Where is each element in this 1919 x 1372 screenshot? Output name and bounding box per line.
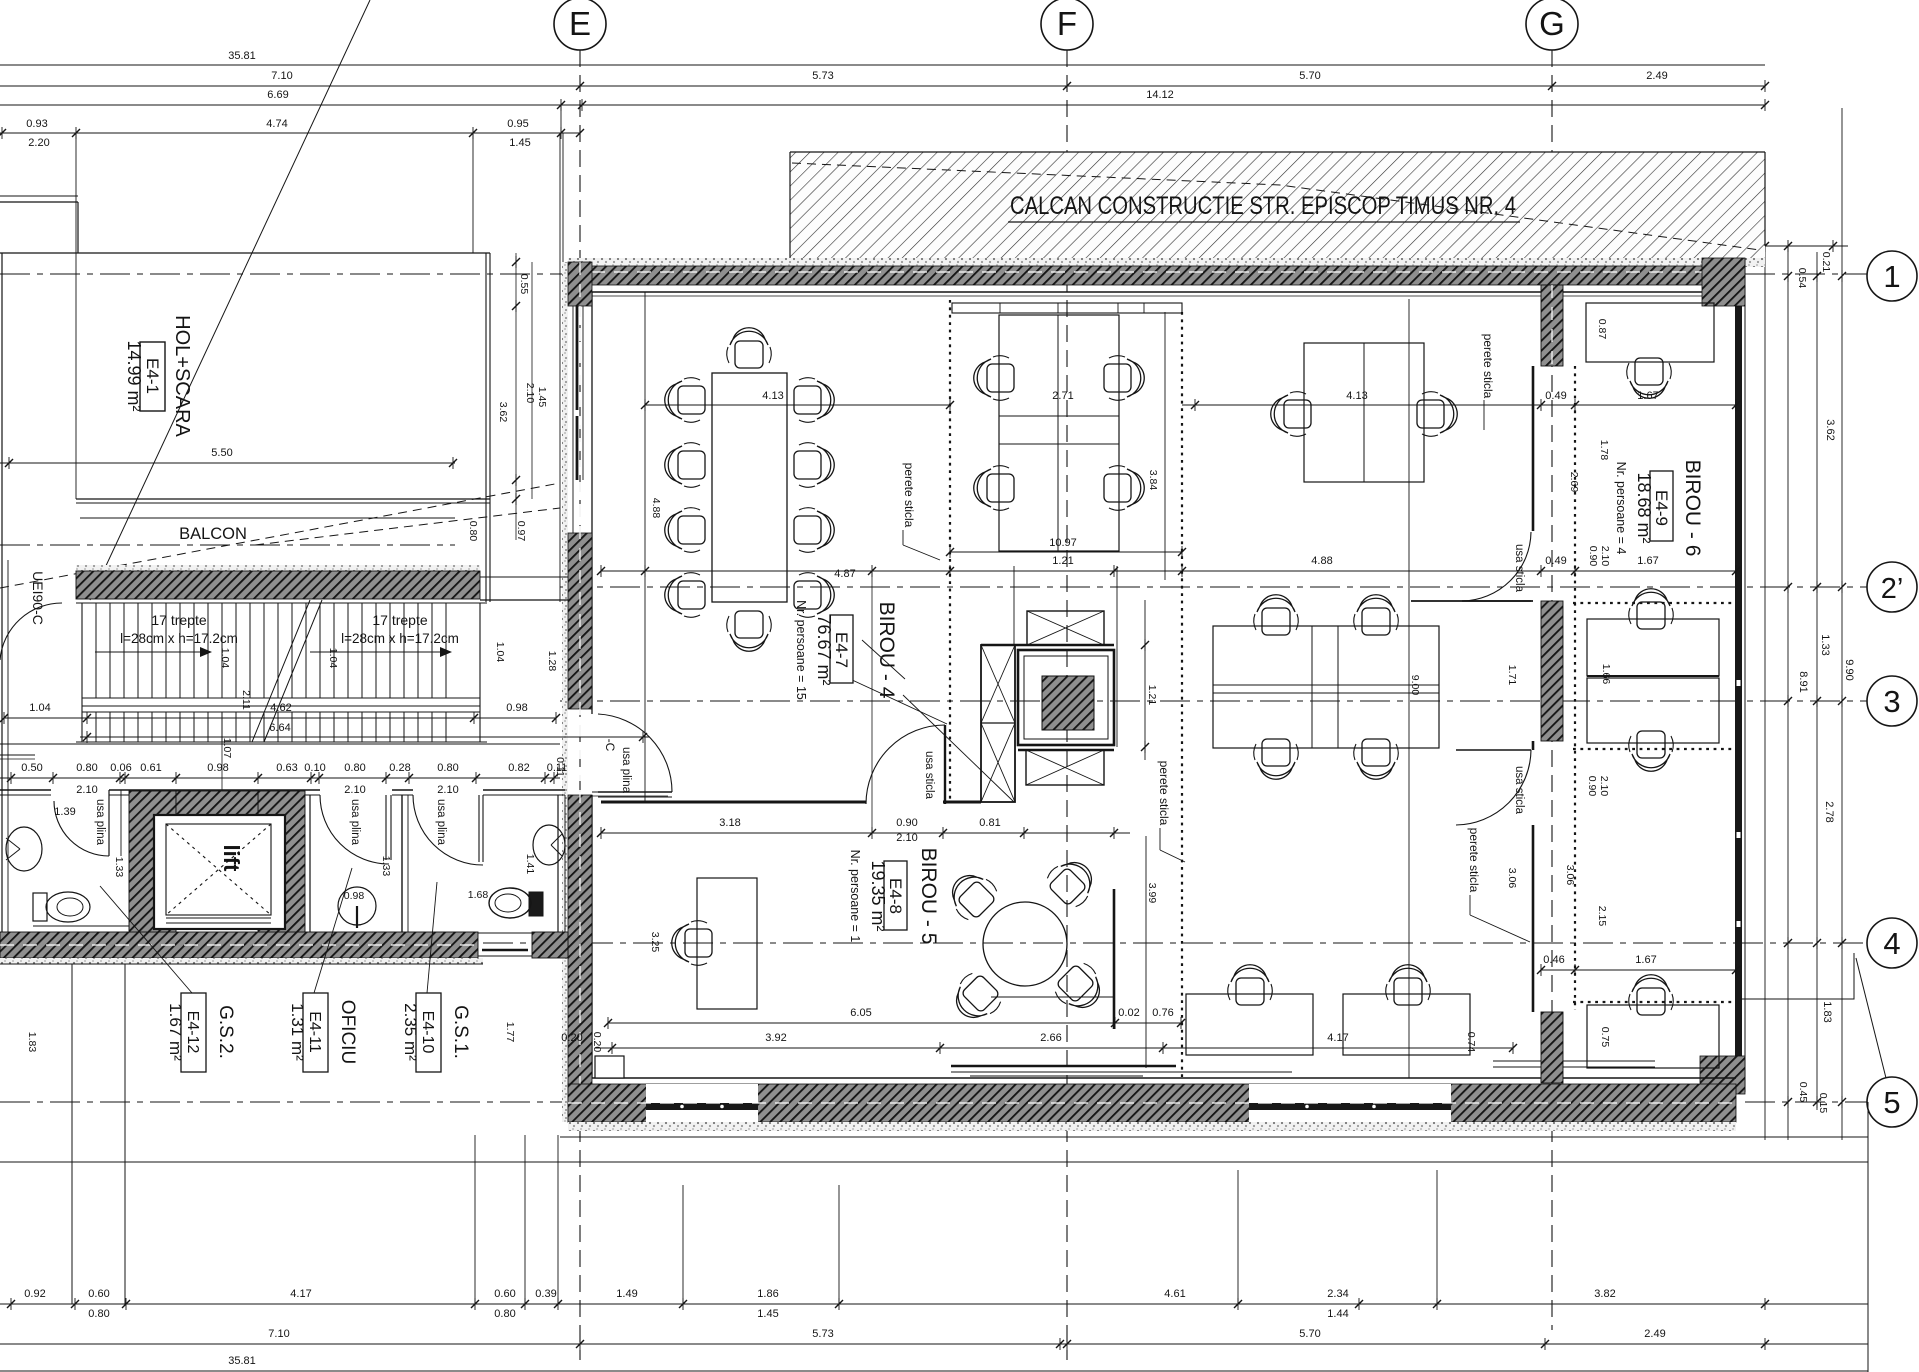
svg-text:perete sticla: perete sticla bbox=[1157, 761, 1171, 826]
svg-text:2.11: 2.11 bbox=[240, 690, 252, 710]
svg-text:2.10: 2.10 bbox=[344, 784, 365, 796]
svg-text:2.49: 2.49 bbox=[1646, 70, 1667, 82]
svg-text:usa sticla: usa sticla bbox=[1513, 544, 1525, 593]
svg-text:E4-11: E4-11 bbox=[306, 1011, 323, 1053]
svg-text:Nr. persoane = 1: Nr. persoane = 1 bbox=[848, 850, 862, 943]
svg-text:1.67: 1.67 bbox=[1637, 390, 1658, 402]
svg-text:CALCAN CONSTRUCTIE STR. EPISCO: CALCAN CONSTRUCTIE STR. EPISCOP TIMUS NR… bbox=[1010, 192, 1516, 220]
svg-text:l=28cm x h=17.2cm: l=28cm x h=17.2cm bbox=[120, 631, 238, 646]
svg-text:1.07: 1.07 bbox=[221, 738, 233, 759]
svg-text:1.67: 1.67 bbox=[1635, 954, 1656, 966]
svg-text:2.10: 2.10 bbox=[896, 832, 917, 844]
svg-text:Nr. persoane = 4: Nr. persoane = 4 bbox=[1614, 462, 1628, 555]
svg-text:1.41: 1.41 bbox=[524, 854, 536, 875]
svg-text:0.50: 0.50 bbox=[21, 762, 42, 774]
svg-text:76.67 m²: 76.67 m² bbox=[814, 614, 834, 685]
svg-text:0.80: 0.80 bbox=[76, 762, 97, 774]
svg-text:1: 1 bbox=[1883, 259, 1900, 294]
svg-text:0.60: 0.60 bbox=[88, 1288, 109, 1300]
svg-text:35.81: 35.81 bbox=[228, 1355, 256, 1367]
svg-text:1.21: 1.21 bbox=[1146, 685, 1158, 706]
svg-text:usa plina: usa plina bbox=[435, 799, 447, 846]
svg-text:1.45: 1.45 bbox=[536, 387, 548, 408]
svg-text:4.17: 4.17 bbox=[290, 1288, 311, 1300]
svg-text:0.11: 0.11 bbox=[554, 757, 566, 777]
svg-text:usa plina: usa plina bbox=[94, 799, 106, 846]
svg-text:3.18: 3.18 bbox=[719, 817, 740, 829]
svg-text:9.90: 9.90 bbox=[1843, 659, 1855, 680]
svg-text:0.82: 0.82 bbox=[508, 762, 529, 774]
svg-text:7.10: 7.10 bbox=[271, 70, 292, 82]
svg-text:E4-1: E4-1 bbox=[143, 358, 162, 394]
svg-text:0.90: 0.90 bbox=[1586, 776, 1598, 797]
svg-text:2.20: 2.20 bbox=[28, 137, 49, 149]
svg-text:1.49: 1.49 bbox=[616, 1288, 637, 1300]
svg-text:4.13: 4.13 bbox=[1346, 390, 1367, 402]
svg-text:10.97: 10.97 bbox=[1049, 537, 1077, 549]
svg-text:E4-10: E4-10 bbox=[419, 1011, 436, 1054]
svg-text:0.46: 0.46 bbox=[1543, 954, 1564, 966]
svg-text:G: G bbox=[1539, 5, 1565, 42]
svg-text:3.06: 3.06 bbox=[1506, 868, 1518, 889]
svg-text:2.66: 2.66 bbox=[1040, 1032, 1061, 1044]
svg-text:1.68: 1.68 bbox=[468, 889, 489, 901]
svg-text:2.10: 2.10 bbox=[76, 784, 97, 796]
svg-text:0.80: 0.80 bbox=[344, 762, 365, 774]
svg-text:1.83: 1.83 bbox=[1821, 1001, 1833, 1022]
svg-text:perete sticla: perete sticla bbox=[902, 463, 916, 528]
svg-text:HOL+SCARA: HOL+SCARA bbox=[171, 315, 193, 437]
svg-text:0.98: 0.98 bbox=[506, 702, 527, 714]
svg-text:0.90: 0.90 bbox=[896, 817, 917, 829]
svg-text:2.78: 2.78 bbox=[1823, 801, 1835, 822]
svg-text:BALCON: BALCON bbox=[179, 525, 247, 543]
svg-text:-C: -C bbox=[603, 739, 617, 752]
svg-text:0.98: 0.98 bbox=[207, 762, 228, 774]
svg-text:0.80: 0.80 bbox=[494, 1308, 515, 1320]
svg-text:G.S.2.: G.S.2. bbox=[215, 1005, 236, 1059]
svg-text:17 trepte: 17 trepte bbox=[151, 612, 206, 628]
svg-text:1.28: 1.28 bbox=[546, 651, 558, 672]
svg-text:4.87: 4.87 bbox=[834, 568, 855, 580]
svg-text:4.17: 4.17 bbox=[1327, 1032, 1348, 1044]
svg-text:2.34: 2.34 bbox=[1327, 1288, 1348, 1300]
svg-text:14.12: 14.12 bbox=[1146, 89, 1174, 101]
svg-text:1.77: 1.77 bbox=[504, 1022, 516, 1043]
svg-text:0.92: 0.92 bbox=[24, 1288, 45, 1300]
svg-text:2.49: 2.49 bbox=[1644, 1328, 1665, 1340]
svg-text:1.04: 1.04 bbox=[29, 702, 50, 714]
svg-text:5.73: 5.73 bbox=[812, 1328, 833, 1340]
svg-text:0.80: 0.80 bbox=[467, 521, 479, 542]
svg-text:0.80: 0.80 bbox=[88, 1308, 109, 1320]
svg-text:3.06: 3.06 bbox=[1564, 865, 1576, 886]
svg-text:F: F bbox=[1057, 5, 1077, 42]
svg-text:0.81: 0.81 bbox=[979, 817, 1000, 829]
svg-text:0.75: 0.75 bbox=[1599, 1027, 1611, 1048]
svg-text:1.33: 1.33 bbox=[113, 857, 125, 878]
svg-text:2.71: 2.71 bbox=[1052, 390, 1073, 402]
svg-text:17 trepte: 17 trepte bbox=[372, 612, 427, 628]
svg-text:6.69: 6.69 bbox=[267, 89, 288, 101]
svg-text:18.68 m²: 18.68 m² bbox=[1634, 472, 1654, 543]
svg-text:0.97: 0.97 bbox=[515, 521, 527, 542]
svg-text:0.95: 0.95 bbox=[507, 118, 528, 130]
svg-text:0.61: 0.61 bbox=[140, 762, 161, 774]
svg-text:2.15: 2.15 bbox=[1596, 906, 1608, 927]
svg-text:6.64: 6.64 bbox=[269, 722, 290, 734]
svg-text:BIROU - 6: BIROU - 6 bbox=[1681, 460, 1704, 557]
svg-text:3.92: 3.92 bbox=[765, 1032, 786, 1044]
svg-text:BIROU - 5: BIROU - 5 bbox=[917, 848, 940, 945]
svg-text:1.04: 1.04 bbox=[494, 642, 506, 663]
svg-text:35.81: 35.81 bbox=[228, 50, 256, 62]
svg-text:G.S.1.: G.S.1. bbox=[450, 1005, 471, 1059]
svg-text:19.35 m²: 19.35 m² bbox=[868, 860, 888, 931]
svg-text:0.74: 0.74 bbox=[1465, 1032, 1477, 1053]
svg-text:2.10: 2.10 bbox=[1599, 546, 1611, 567]
svg-text:4.88: 4.88 bbox=[650, 498, 662, 519]
svg-text:1.31 m²: 1.31 m² bbox=[288, 1003, 307, 1061]
svg-text:1.33: 1.33 bbox=[380, 856, 392, 877]
svg-text:6.05: 6.05 bbox=[850, 1007, 871, 1019]
svg-text:0.49: 0.49 bbox=[1545, 390, 1566, 402]
svg-text:2.69: 2.69 bbox=[1568, 472, 1580, 493]
svg-text:E4-12: E4-12 bbox=[184, 1011, 201, 1054]
svg-text:3.82: 3.82 bbox=[1594, 1288, 1615, 1300]
svg-text:0.45: 0.45 bbox=[1797, 1082, 1809, 1103]
svg-text:3.25: 3.25 bbox=[649, 932, 661, 953]
svg-text:0.20: 0.20 bbox=[561, 1032, 582, 1044]
svg-text:0.87: 0.87 bbox=[1596, 319, 1608, 340]
svg-text:1.21: 1.21 bbox=[1052, 555, 1073, 567]
svg-text:usa sticla: usa sticla bbox=[1513, 766, 1525, 815]
svg-text:0.02: 0.02 bbox=[1118, 1007, 1139, 1019]
svg-text:1.45: 1.45 bbox=[509, 137, 530, 149]
svg-text:0.49: 0.49 bbox=[1545, 555, 1566, 567]
svg-text:0.93: 0.93 bbox=[26, 118, 47, 130]
svg-text:1.33: 1.33 bbox=[1819, 634, 1831, 655]
svg-text:2’: 2’ bbox=[1881, 573, 1904, 605]
svg-text:0.55: 0.55 bbox=[518, 274, 530, 295]
svg-text:3.62: 3.62 bbox=[1824, 419, 1836, 440]
svg-text:0.90: 0.90 bbox=[1587, 546, 1599, 567]
svg-text:7.10: 7.10 bbox=[268, 1328, 289, 1340]
svg-text:1.39: 1.39 bbox=[54, 806, 75, 818]
svg-text:2.10: 2.10 bbox=[437, 784, 458, 796]
svg-text:1.78: 1.78 bbox=[1598, 440, 1610, 461]
svg-text:E: E bbox=[569, 5, 591, 42]
svg-text:2.10: 2.10 bbox=[1598, 776, 1610, 797]
svg-text:1.44: 1.44 bbox=[1327, 1308, 1348, 1320]
svg-text:14.99 m²: 14.99 m² bbox=[124, 340, 144, 411]
svg-text:5.70: 5.70 bbox=[1299, 1328, 1320, 1340]
svg-text:perete sticla: perete sticla bbox=[1467, 828, 1481, 893]
svg-text:4: 4 bbox=[1883, 926, 1900, 961]
svg-text:0.20: 0.20 bbox=[591, 1032, 603, 1053]
svg-text:usa plina: usa plina bbox=[620, 747, 632, 794]
svg-text:perete sticla: perete sticla bbox=[1481, 334, 1495, 399]
svg-text:0.15: 0.15 bbox=[1817, 1093, 1829, 1114]
svg-text:1.66: 1.66 bbox=[1600, 664, 1612, 685]
svg-text:0.06: 0.06 bbox=[110, 762, 131, 774]
svg-text:2.35 m²: 2.35 m² bbox=[401, 1003, 420, 1061]
svg-text:1.71: 1.71 bbox=[1506, 665, 1518, 686]
svg-text:1.67 m²: 1.67 m² bbox=[166, 1003, 185, 1061]
svg-text:4.62: 4.62 bbox=[270, 702, 291, 714]
svg-text:0.63: 0.63 bbox=[276, 762, 297, 774]
svg-text:OFICIU: OFICIU bbox=[337, 1000, 358, 1064]
svg-text:usa sticla: usa sticla bbox=[923, 751, 935, 800]
svg-text:0.98: 0.98 bbox=[344, 890, 365, 902]
svg-text:5.50: 5.50 bbox=[211, 447, 232, 459]
svg-text:1.83: 1.83 bbox=[26, 1032, 38, 1053]
svg-text:Nr. persoane = 15: Nr. persoane = 15 bbox=[794, 600, 808, 700]
svg-text:4.74: 4.74 bbox=[266, 118, 287, 130]
svg-text:9.00: 9.00 bbox=[1409, 675, 1421, 696]
svg-text:l=28cm x h=17.2cm: l=28cm x h=17.2cm bbox=[341, 631, 459, 646]
svg-text:5: 5 bbox=[1883, 1085, 1900, 1120]
svg-text:4.61: 4.61 bbox=[1164, 1288, 1185, 1300]
svg-text:3: 3 bbox=[1883, 684, 1900, 719]
svg-text:4.88: 4.88 bbox=[1311, 555, 1332, 567]
svg-text:0.28: 0.28 bbox=[389, 762, 410, 774]
svg-text:UEI90-C: UEI90-C bbox=[30, 571, 46, 625]
svg-text:2.10: 2.10 bbox=[524, 383, 536, 404]
svg-text:BIROU - 4: BIROU - 4 bbox=[875, 602, 898, 699]
svg-text:0.39: 0.39 bbox=[535, 1288, 556, 1300]
svg-text:3.84: 3.84 bbox=[1147, 470, 1159, 491]
svg-text:0.76: 0.76 bbox=[1152, 1007, 1173, 1019]
svg-text:1.04: 1.04 bbox=[219, 648, 231, 669]
svg-text:0.21: 0.21 bbox=[1820, 252, 1832, 273]
svg-text:usa plina: usa plina bbox=[349, 799, 361, 846]
svg-text:0.60: 0.60 bbox=[494, 1288, 515, 1300]
svg-text:0.10: 0.10 bbox=[304, 762, 325, 774]
svg-text:4.13: 4.13 bbox=[762, 390, 783, 402]
svg-text:1.86: 1.86 bbox=[757, 1288, 778, 1300]
svg-text:0.80: 0.80 bbox=[437, 762, 458, 774]
svg-text:1.45: 1.45 bbox=[757, 1308, 778, 1320]
svg-text:5.70: 5.70 bbox=[1299, 70, 1320, 82]
svg-text:8.91: 8.91 bbox=[1797, 671, 1809, 692]
svg-text:5.73: 5.73 bbox=[812, 70, 833, 82]
svg-text:0.54: 0.54 bbox=[1796, 268, 1808, 289]
svg-text:1.04: 1.04 bbox=[327, 648, 339, 669]
svg-text:3.62: 3.62 bbox=[497, 402, 509, 423]
svg-text:lift: lift bbox=[219, 845, 244, 873]
svg-text:1.67: 1.67 bbox=[1637, 555, 1658, 567]
svg-text:3.99: 3.99 bbox=[1146, 883, 1158, 904]
